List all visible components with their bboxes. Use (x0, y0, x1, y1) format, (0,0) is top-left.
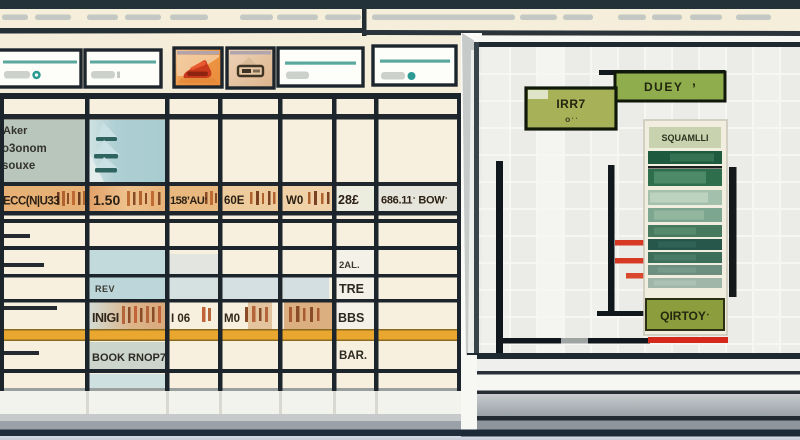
svg-text:Aker: Aker (3, 125, 28, 137)
svg-text:2AL.: 2AL. (339, 260, 360, 271)
svg-text:souxe: souxe (2, 160, 35, 172)
svg-text:IRR7: IRR7 (556, 97, 585, 111)
svg-text:BOOK RNOP7: BOOK RNOP7 (92, 352, 166, 364)
svg-text:DUEY: DUEY (644, 80, 683, 94)
svg-text:ECC(N|U33: ECC(N|U33 (3, 196, 59, 208)
svg-text:28£: 28£ (338, 193, 359, 207)
svg-text:60E: 60E (224, 195, 245, 207)
svg-text:INIGI: INIGI (92, 311, 119, 325)
svg-text:SQUAMLLI: SQUAMLLI (662, 133, 709, 143)
svg-text:M0: M0 (224, 313, 240, 325)
svg-text:686.11ˑ BOWˑ: 686.11ˑ BOWˑ (381, 195, 448, 207)
svg-text:REV: REV (95, 284, 115, 294)
svg-text:’: ’ (692, 80, 696, 96)
svg-text:QIRTOYˑ: QIRTOYˑ (660, 309, 710, 323)
svg-text:oˑˑ: oˑˑ (565, 114, 579, 124)
svg-text:W0: W0 (286, 195, 303, 207)
svg-text:1.50: 1.50 (93, 192, 120, 208)
svg-text:BAR.: BAR. (339, 350, 367, 362)
svg-text:BBS: BBS (338, 311, 364, 325)
svg-text:158’AUˑ: 158’AUˑ (170, 195, 207, 207)
svg-text:TRE: TRE (339, 282, 364, 296)
svg-text:o3onom: o3onom (2, 143, 47, 155)
svg-text:I 06: I 06 (171, 313, 190, 325)
